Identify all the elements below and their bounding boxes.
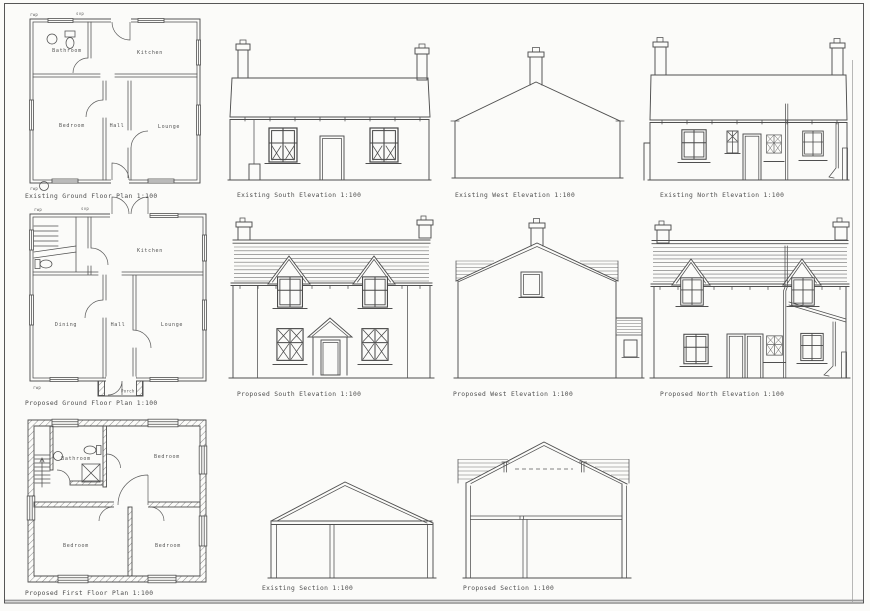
- french-doors: [727, 334, 763, 378]
- walls: [650, 287, 850, 379]
- room-kitchen: Kitchen: [137, 248, 163, 254]
- chimneys: [236, 40, 429, 80]
- roof: [231, 240, 432, 289]
- walls: [228, 120, 431, 181]
- dormer-right: [353, 256, 395, 309]
- chimneys: [655, 218, 849, 243]
- soil-vent-pipe: [786, 104, 788, 180]
- door: [743, 134, 761, 180]
- windows: [265, 128, 401, 164]
- caption-existing-west-elevation: Existing West Elevation 1:100: [455, 192, 575, 199]
- dormer-left: [672, 259, 710, 307]
- proposed-north-elevation: Proposed North Elevation 1:100: [650, 218, 850, 398]
- landing-door: [118, 475, 148, 505]
- walls: [268, 521, 436, 578]
- room-bathroom: Bathroom: [61, 456, 91, 462]
- room-bedroom: Bedroom: [59, 123, 85, 129]
- soil-vent-pipe: [784, 246, 788, 378]
- roof: [456, 243, 618, 282]
- existing-north-elevation: Existing North Elevation 1:100: [644, 38, 849, 200]
- walls-and-floor: [463, 483, 631, 578]
- gable-window: [519, 272, 544, 298]
- french-doors: [110, 197, 150, 219]
- chimneys: [236, 216, 433, 240]
- caption-proposed-ground-floor-plan: Proposed Ground Floor Plan 1:100: [25, 400, 158, 407]
- drawing-canvas: rwp svp: [0, 0, 870, 611]
- windows: [680, 333, 827, 366]
- caption-existing-ground-floor-plan: Existing Ground Floor Plan 1:100: [25, 193, 158, 200]
- svg-text:rwp: rwp: [30, 186, 38, 191]
- rwp-label: rwp: [34, 207, 42, 212]
- walls: [452, 121, 623, 178]
- roof: [451, 82, 624, 121]
- roof: [650, 75, 847, 124]
- plan-walls: [30, 214, 206, 381]
- door: [320, 136, 344, 180]
- chimneys: [653, 38, 845, 76]
- porch: Porch: [98, 381, 143, 396]
- room-bedroom-right: Bedroom: [155, 543, 181, 549]
- caption-proposed-section: Proposed Section 1:100: [463, 585, 554, 592]
- caption-proposed-first-floor-plan: Proposed First Floor Plan 1:100: [25, 590, 153, 597]
- proposed-west-elevation: Proposed West Elevation 1:100: [453, 219, 644, 399]
- chimney: [528, 48, 544, 86]
- staircase: [35, 455, 50, 487]
- room-lounge: Lounge: [161, 322, 183, 328]
- existing-section: Existing Section 1:100: [262, 482, 436, 592]
- caption-proposed-west-elevation: Proposed West Elevation 1:100: [453, 391, 573, 398]
- proposed-south-elevation: Proposed South Elevation 1:100: [229, 216, 434, 398]
- rwp-label: rwp: [33, 385, 41, 390]
- room-kitchen: Kitchen: [137, 50, 163, 56]
- roof-structure: [271, 482, 433, 525]
- side-roof-slate-left: [458, 460, 508, 484]
- room-hall: Hall: [110, 123, 125, 129]
- room-porch: Porch: [121, 389, 135, 394]
- room-bedroom-top: Bedroom: [154, 454, 180, 460]
- rwp-label: rwp: [30, 12, 38, 17]
- room-bedroom-left: Bedroom: [63, 543, 89, 549]
- rainwater-pipe: [829, 123, 848, 181]
- side-roof-slate-right: [580, 460, 629, 484]
- room-bathroom: Bathroom: [52, 48, 82, 54]
- walls: [454, 281, 644, 378]
- room-hall: Hall: [111, 322, 126, 328]
- rainwater-pipe: [824, 322, 847, 378]
- proposed-section: Proposed Section 1:100: [458, 442, 631, 592]
- roof: [230, 78, 430, 121]
- dormer-right: [783, 259, 821, 307]
- porch: [308, 318, 352, 375]
- svp-label: svp: [81, 206, 89, 211]
- plan-walls: [30, 19, 200, 183]
- plan-windows: [30, 214, 207, 382]
- caption-proposed-north-elevation: Proposed North Elevation 1:100: [660, 391, 784, 398]
- existing-ground-floor-plan: rwp svp: [25, 11, 201, 200]
- caption-existing-south-elevation: Existing South Elevation 1:100: [237, 192, 361, 199]
- rainwater-pipe: [249, 120, 260, 181]
- staircase: [34, 226, 76, 269]
- existing-south-elevation: Existing South Elevation 1:100: [228, 40, 431, 199]
- room-dining: Dining: [55, 322, 77, 328]
- interior-walls: [34, 426, 200, 576]
- caption-proposed-south-elevation: Proposed South Elevation 1:100: [237, 391, 361, 398]
- caption-existing-north-elevation: Existing North Elevation 1:100: [660, 192, 784, 199]
- caption-existing-section: Existing Section 1:100: [262, 585, 353, 592]
- plan-doors: [73, 18, 148, 185]
- svp-label: svp: [76, 11, 84, 16]
- proposed-ground-floor-plan: rwp svp rwp: [25, 197, 207, 407]
- existing-west-elevation: Existing West Elevation 1:100: [451, 48, 624, 200]
- windows: [678, 130, 827, 163]
- bathroom-fixtures: [54, 446, 102, 483]
- proposed-first-floor-plan: Bathroom Bedroom Bedroom Bedroom Propose…: [25, 419, 207, 597]
- rear-extension: [616, 318, 642, 378]
- drawing-sheet: rwp svp: [0, 0, 870, 611]
- bathroom-fixtures: [47, 31, 75, 49]
- room-lounge: Lounge: [158, 124, 180, 130]
- dormer-left: [268, 256, 310, 309]
- chimney: [529, 219, 545, 247]
